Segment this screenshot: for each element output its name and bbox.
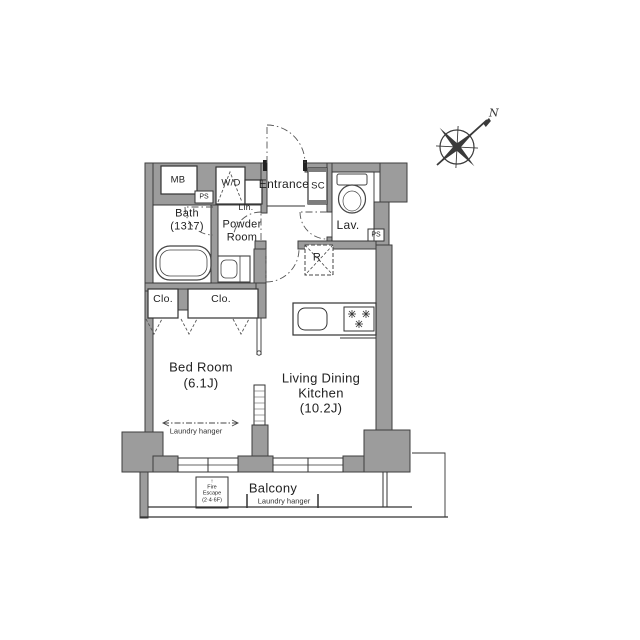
shoe-closet-label: SC [311, 181, 325, 191]
washer-dryer-label: W/D [221, 178, 240, 188]
ldk-label-2: Kitchen [298, 387, 343, 400]
ldk-size-label: (10.2J) [300, 402, 343, 415]
closet-door-marks [146, 319, 249, 334]
ldk-window [273, 458, 343, 472]
refrigerator-label: R [313, 253, 321, 264]
bedroom-sliding-door [254, 318, 265, 425]
compass-needle [437, 120, 487, 165]
bedroom-size-label: (6.1J) [183, 377, 218, 390]
linen-label: Lin. [239, 203, 254, 212]
powder-room-label-1: Powder [222, 220, 261, 231]
entrance-door-posts [263, 160, 307, 171]
floor-plan-page: Entrance SC Lav. W/D Lin. Powder Room Ba… [0, 0, 640, 640]
pipe-space-label-1: PS [199, 194, 208, 201]
compass-north-label: N [489, 108, 499, 119]
ldk-door [266, 249, 299, 282]
fire-escape-label-3: (2·4·6F) [202, 498, 222, 504]
compass-rose [436, 118, 491, 168]
bedroom-label: Bed Room [169, 361, 233, 374]
fire-escape-label-2: Escape [203, 491, 221, 497]
bath-size-label: (1317) [170, 222, 204, 233]
powder-room-label-2: Room [227, 233, 258, 244]
laundry-hanger-bedroom-label: Laundry hanger [170, 427, 223, 435]
lavatory-door [300, 212, 327, 239]
ldk-label-1: Living Dining [282, 372, 360, 385]
toilet [337, 174, 367, 213]
closet-right-label: Clo. [211, 294, 231, 305]
entrance-label: Entrance [259, 178, 309, 190]
vanity-washbasin [218, 256, 250, 282]
balcony-label: Balcony [249, 482, 297, 495]
meter-box-label: MB [171, 175, 186, 185]
bath-label: Bath [175, 209, 199, 220]
kitchen-counter [293, 303, 376, 338]
lavatory-label: Lav. [337, 219, 360, 231]
bedroom-window [178, 458, 238, 472]
walls-group [122, 163, 410, 518]
laundry-hanger-balcony-label: Laundry hanger [258, 497, 311, 505]
floor-plan-drawing [0, 0, 640, 640]
pipe-space-label-2: PS [371, 232, 380, 239]
entrance-door [267, 125, 305, 163]
kitchen-sink [298, 308, 327, 330]
closet-left-label: Clo. [153, 294, 173, 305]
bathtub [156, 246, 211, 280]
laundry-hanger-line [163, 420, 238, 426]
